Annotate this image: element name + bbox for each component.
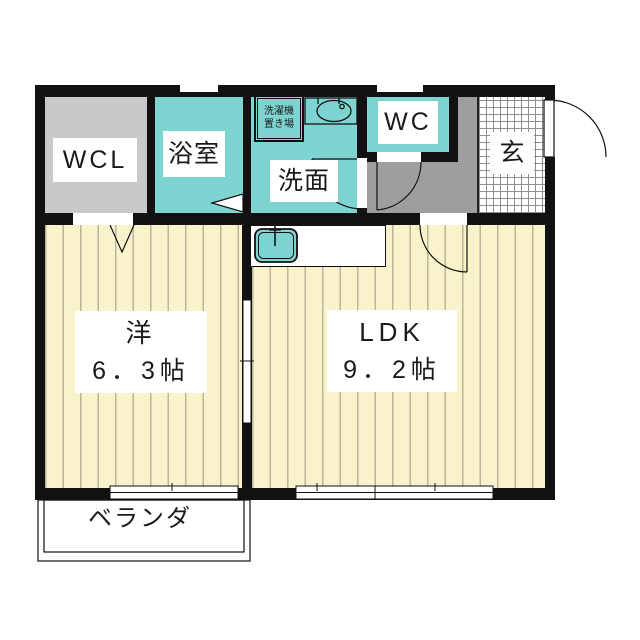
- label-ldk-room: LDK 9．2帖: [327, 310, 457, 392]
- label-entrance: 玄: [490, 132, 534, 174]
- wall-bottom: [35, 488, 555, 500]
- washing-machine-label-line2: 置き場: [264, 119, 294, 130]
- label-wc: WC: [378, 101, 438, 144]
- label-western-name: 洋: [125, 319, 156, 349]
- label-western-room: 洋 6．3帖: [75, 311, 207, 393]
- door-gap-washroom: [357, 158, 367, 208]
- door-gap-wc: [377, 152, 421, 162]
- window-bathroom: [180, 83, 218, 92]
- wall-bathroom-washroom: [243, 97, 251, 213]
- wall-wc-hall: [449, 97, 458, 162]
- label-veranda: ベランダ: [60, 503, 220, 535]
- label-western-size: 6．3帖: [92, 357, 190, 386]
- washing-machine-label-line1: 洗濯機: [264, 106, 294, 117]
- label-bathroom: 浴室: [163, 131, 225, 177]
- washing-machine-label: 洗濯機 置き場: [257, 98, 301, 139]
- label-ldk-size: 9．2帖: [343, 356, 441, 385]
- entrance-door-arc: [549, 100, 606, 157]
- kitchen-counter: [250, 225, 386, 267]
- floor-plan: 洗濯機 置き場: [0, 0, 640, 640]
- wall-left: [35, 85, 45, 500]
- washing-machine-area: 洗濯機 置き場: [254, 95, 304, 142]
- door-gap-wcl: [73, 213, 133, 225]
- label-ldk-name: LDK: [359, 318, 425, 348]
- label-washroom: 洗面: [270, 160, 338, 202]
- door-gap-entrance: [545, 102, 555, 157]
- window-wc: [377, 83, 423, 92]
- door-gap-ldk: [420, 213, 467, 225]
- label-wcl: WCL: [53, 138, 137, 182]
- wall-wcl-bathroom: [147, 97, 155, 213]
